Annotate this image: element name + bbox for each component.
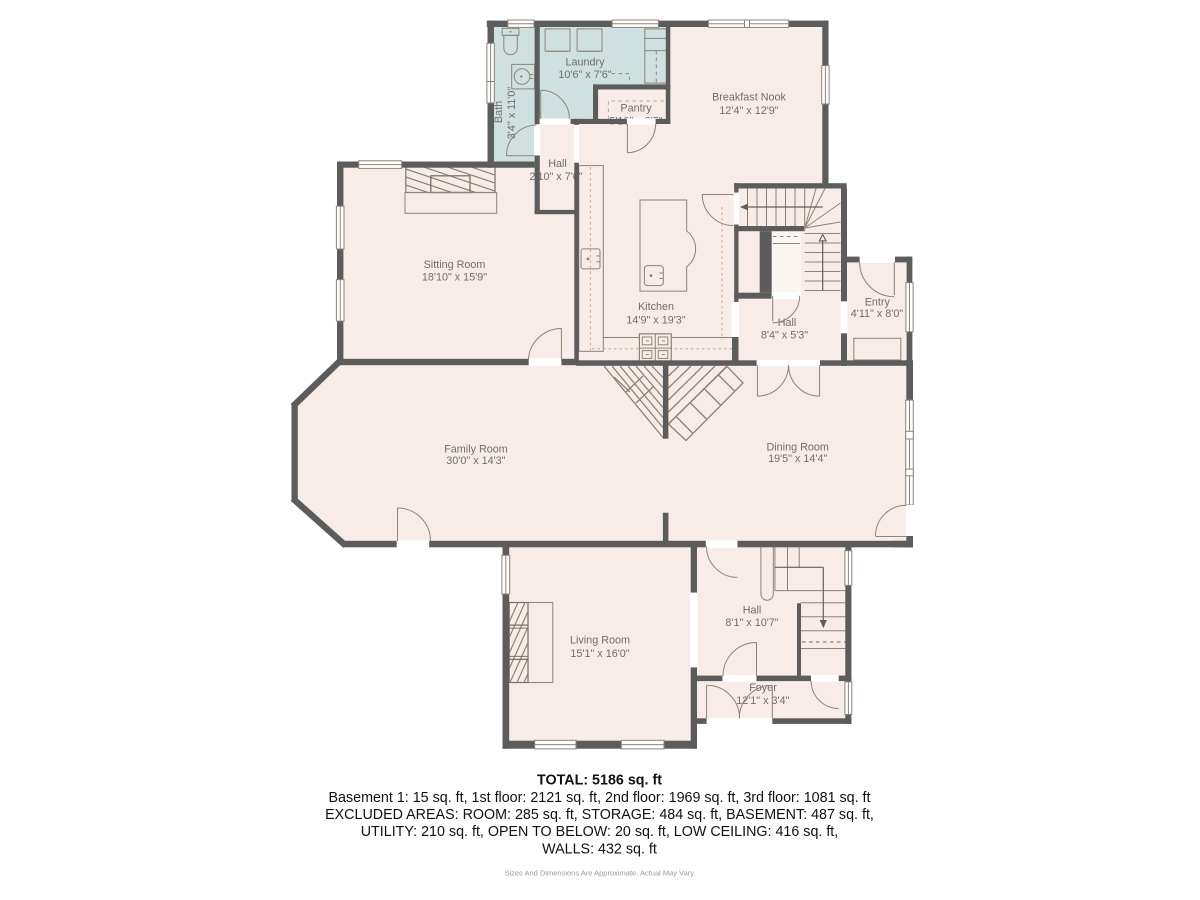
svg-text:Family Room: Family Room <box>444 443 508 455</box>
svg-text:EXCLUDED AREAS: ROOM: 285 sq.: EXCLUDED AREAS: ROOM: 285 sq. ft, STORAG… <box>325 807 874 823</box>
svg-text:Kitchen: Kitchen <box>638 301 674 313</box>
svg-text:8'4" x 5'3": 8'4" x 5'3" <box>761 330 808 342</box>
svg-text:Sitting Room: Sitting Room <box>424 259 486 271</box>
svg-text:Hall: Hall <box>548 158 567 170</box>
svg-text:15'1" x 16'0": 15'1" x 16'0" <box>570 648 629 660</box>
svg-text:Foyer: Foyer <box>749 682 777 694</box>
svg-text:Dining Room: Dining Room <box>766 441 828 453</box>
svg-text:30'0" x 14'3": 30'0" x 14'3" <box>446 455 505 467</box>
svg-text:WALLS: 432 sq. ft: WALLS: 432 sq. ft <box>542 841 657 857</box>
svg-text:4'11" x 8'0": 4'11" x 8'0" <box>851 308 904 320</box>
svg-text:12'4" x 12'9": 12'4" x 12'9" <box>719 105 778 117</box>
svg-text:14'9" x 19'3": 14'9" x 19'3" <box>626 315 685 327</box>
svg-text:19'5" x 14'4": 19'5" x 14'4" <box>768 453 827 465</box>
svg-text:Living Room: Living Room <box>570 635 630 647</box>
svg-text:TOTAL: 5186 sq. ft: TOTAL: 5186 sq. ft <box>537 773 662 789</box>
svg-text:Breakfast Nook: Breakfast Nook <box>712 92 786 104</box>
svg-text:Pantry: Pantry <box>620 103 652 115</box>
svg-text:UTILITY: 210 sq. ft, OPEN TO B: UTILITY: 210 sq. ft, OPEN TO BELOW: 20 s… <box>361 824 839 840</box>
svg-text:3'4" x 11'0": 3'4" x 11'0" <box>506 87 518 140</box>
svg-text:Entry: Entry <box>865 297 891 309</box>
svg-text:Laundry: Laundry <box>565 57 605 69</box>
svg-text:Basement 1: 15 sq. ft, 1st flo: Basement 1: 15 sq. ft, 1st floor: 2121 s… <box>328 790 870 806</box>
svg-text:10'6" x 7'6": 10'6" x 7'6" <box>558 69 611 81</box>
svg-text:8'1" x 10'7": 8'1" x 10'7" <box>725 617 778 629</box>
svg-text:Sizes And Dimensions Are Appro: Sizes And Dimensions Are Approximate. Ac… <box>504 869 695 878</box>
svg-text:Hall: Hall <box>743 605 762 617</box>
svg-text:Bath: Bath <box>493 101 505 123</box>
svg-text:18'10" x 15'9": 18'10" x 15'9" <box>422 272 487 284</box>
